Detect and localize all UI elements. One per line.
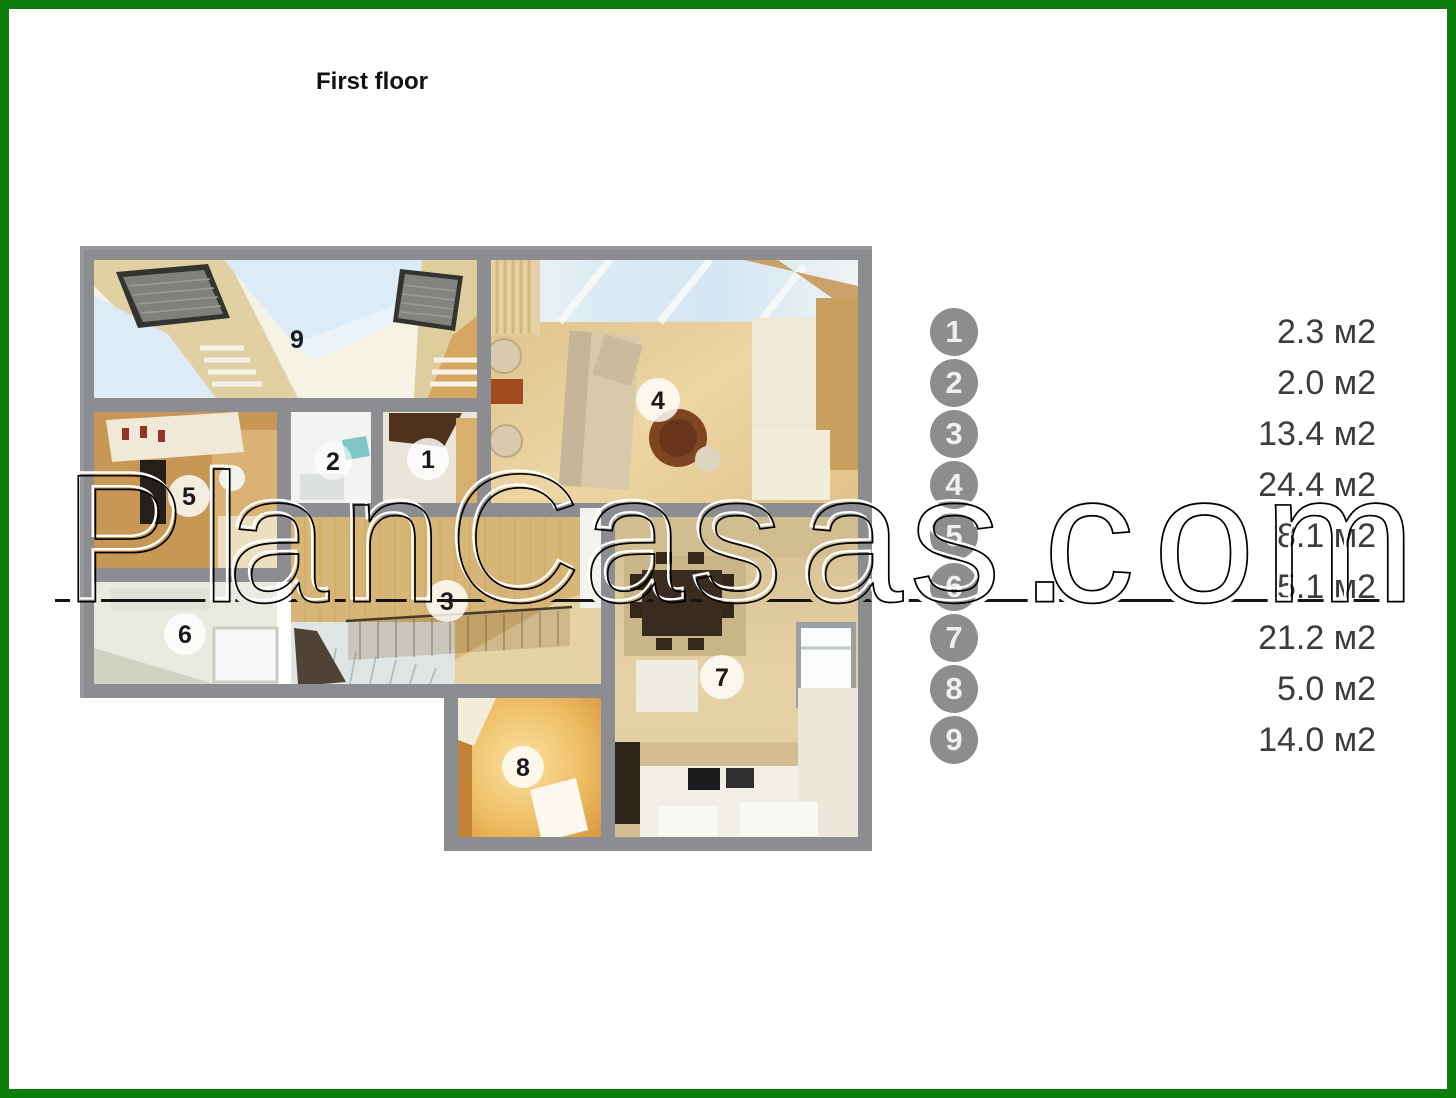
svg-text:PlanCasas.com: PlanCasas.com — [63, 436, 1415, 641]
